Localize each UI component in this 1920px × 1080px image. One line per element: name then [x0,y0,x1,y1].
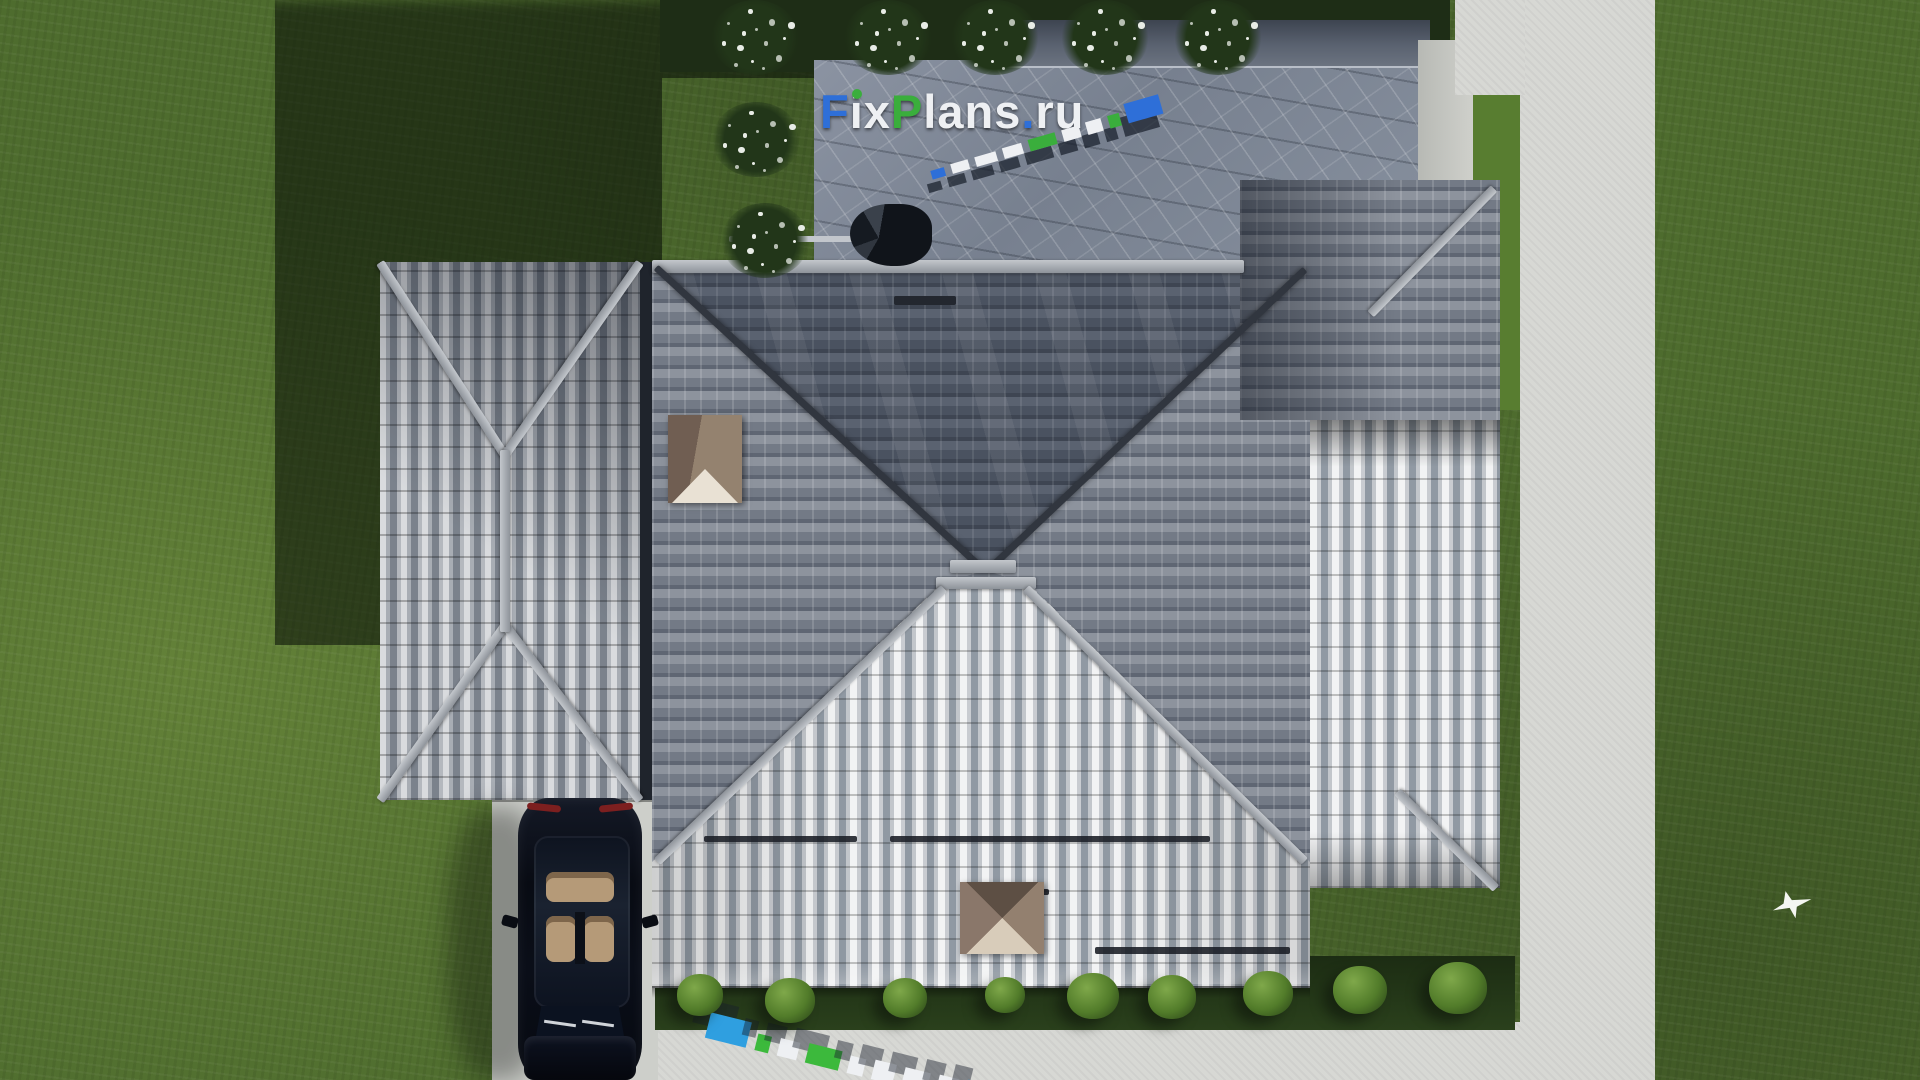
blossom [995,28,998,31]
car-taillight-left [527,802,562,813]
watermark-letter: P [891,84,923,139]
bush [1148,975,1196,1018]
bush [677,974,723,1015]
blossom [742,31,747,36]
blossom [1119,19,1125,25]
blossom [1087,45,1093,51]
eave-shadow [652,986,1310,998]
blossom [967,22,970,25]
blossom [748,9,753,14]
blossom [783,37,786,40]
bush [1243,971,1293,1016]
blossom [762,67,765,70]
blossom [770,121,776,127]
blossom [727,22,730,25]
blossom [1133,37,1136,40]
car-rear-bench [546,872,614,902]
blossom [1227,41,1232,46]
blossom [1101,60,1104,63]
blossom [1218,28,1221,31]
blossom [752,234,757,239]
blossom [870,45,876,51]
blossom [1211,9,1216,14]
flowering-bush [721,203,809,278]
eave-highlight [652,964,1310,984]
bush [883,978,927,1018]
blossom [737,45,743,51]
car-taillight-right [599,802,634,813]
blossom [786,258,792,264]
blossom [988,9,993,14]
bush [985,977,1025,1013]
blossom [1114,41,1119,46]
blossom [1028,22,1034,28]
car-wiper [544,1020,576,1027]
flowering-bush [844,0,932,75]
blossom [798,225,804,231]
blossom [743,133,748,138]
blossom [772,270,775,273]
snow-guard [890,836,1210,842]
blossom [881,9,886,14]
blossom [855,41,860,46]
blossom [755,28,758,31]
blossom [774,244,779,249]
blossom [1077,22,1080,25]
blossom [1200,45,1206,51]
blossom [751,60,754,63]
blossom [1138,22,1144,28]
blossom [888,28,891,31]
chimney-front [960,882,1044,954]
watermark-letter: i [850,84,864,139]
blossom [758,212,763,217]
blossom [884,60,887,63]
snow-guard [1095,947,1290,954]
blossom [991,60,994,63]
roof-vent-bar [894,296,956,305]
watermark-block [871,1060,897,1080]
blossom [1246,37,1249,40]
blossom [982,31,987,36]
blossom [1232,19,1238,25]
blossom [1185,41,1190,46]
blossom [1126,55,1132,61]
blossom [735,165,740,170]
right-section-shadow [1310,420,1500,888]
watermark-block [847,1055,867,1076]
blossom [1197,63,1202,68]
blossom [765,231,768,234]
blossom [738,147,744,153]
blossom [1084,63,1089,68]
flowering-bush [1061,0,1149,75]
flowering-bush [1174,0,1262,75]
blossom [916,37,919,40]
watermark-block [754,1033,772,1053]
blossom [784,139,787,142]
bush [1333,966,1387,1015]
aerial-house-render: FixPlans.ru [0,0,1920,1080]
patio-ornament [850,204,932,266]
blossom [756,130,759,133]
chimney-rear [668,415,742,503]
blossom [769,19,775,25]
snow-guard [704,836,857,842]
blossom [777,157,783,163]
blossom [728,124,731,127]
blossom [1004,41,1009,46]
blossom [1023,37,1026,40]
roof-left-wing [380,262,640,800]
blossom [793,240,796,243]
blossom [1072,41,1077,46]
blossom [909,55,915,61]
blossom [1016,55,1022,61]
watermark-block [901,1067,931,1080]
bush [765,978,815,1023]
blossom [789,124,795,130]
blossom [1239,55,1245,61]
roof-apex-ridge [936,577,1036,589]
blossom [1214,60,1217,63]
blossom [744,266,749,271]
blossom [1205,31,1210,36]
car [518,798,642,1080]
car-glass-roof [534,836,630,1008]
blossom [764,41,769,46]
blossom [723,143,728,148]
watermark-letter: x [864,84,891,139]
flowering-bush [711,0,799,75]
blossom [752,162,755,165]
roof-ridge-vertical [500,450,510,632]
blossom [921,22,927,28]
blossom [867,63,872,68]
blossom [1251,22,1257,28]
roof-right-section [1310,420,1500,888]
blossom [860,22,863,25]
blossom [734,63,739,68]
blossom [1092,31,1097,36]
blossom [1225,67,1228,70]
flowering-bush [951,0,1039,75]
blossom [974,63,979,68]
blossom [1190,22,1193,25]
blossom [897,41,902,46]
blossom [749,111,754,116]
car-seat-left [546,916,576,962]
car-console [575,912,585,964]
blossom [1112,67,1115,70]
blossom [1009,19,1015,25]
blossom [902,19,908,25]
blossom [1002,67,1005,70]
blossom [1105,28,1108,31]
blossom [761,263,764,266]
blossom [722,41,727,46]
tree-shadow-on-roof [380,262,640,800]
flowering-bush [712,102,800,177]
blossom [776,55,782,61]
bush [1067,973,1119,1020]
blossom [875,31,880,36]
car-windshield [536,1006,624,1036]
blossom [895,67,898,70]
blossom [732,244,737,249]
blossom [747,248,753,254]
bush [1429,962,1487,1014]
blossom [763,169,766,172]
blossom [779,222,785,228]
chimney-cap [672,469,738,503]
car-wiper [582,1020,614,1027]
blossom [788,22,794,28]
wing-gap-shadow [640,262,652,800]
blossom [1098,9,1103,14]
watermark-letter: F [820,84,850,139]
car-hood [524,1036,636,1080]
blossom [765,143,770,148]
walkway-right [1520,0,1655,1080]
blossom [962,41,967,46]
blossom [977,45,983,51]
car-seat-right [584,916,614,962]
roof-node [950,560,1016,573]
walkway-right-upper [1455,0,1525,95]
blossom [737,225,740,228]
watermark-letter: lans [923,84,1021,139]
watermark-block [935,1075,959,1080]
